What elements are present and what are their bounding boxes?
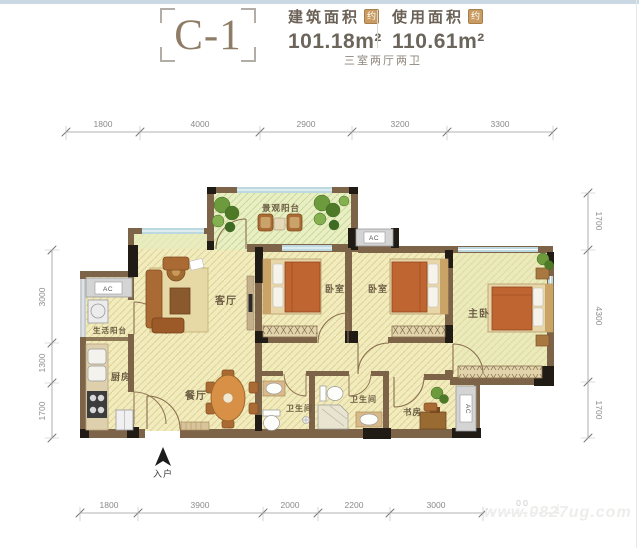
- dim-value: 4300: [594, 307, 604, 326]
- dim-value: 1700: [594, 212, 604, 231]
- living-window-tint: [134, 234, 212, 249]
- ac-text: AC: [464, 404, 471, 414]
- ac-text: AC: [103, 286, 113, 293]
- dim-value: 2200: [345, 500, 364, 510]
- room-label-bedroom2: 卧室: [368, 283, 388, 294]
- bed-bedroom1: [263, 259, 321, 314]
- dim-value: 1800: [100, 500, 119, 510]
- dim-value: 4000: [191, 119, 210, 129]
- shoe-cabinet: [181, 422, 209, 430]
- room-label-living: 客厅: [214, 294, 237, 307]
- dim-value: 2000: [281, 500, 300, 510]
- ac-unit-service: AC: [86, 278, 132, 297]
- entrance-label: 入户: [153, 468, 173, 479]
- room-label-study: 书房: [403, 407, 422, 417]
- watermark: www.0827ug.com: [484, 504, 634, 522]
- floor-plan: 1800 4000 2900 3200 3300 1800 3900 2000 …: [0, 0, 639, 548]
- dim-left: 3000 1300 1700: [37, 246, 59, 442]
- dim-value: 3300: [491, 119, 510, 129]
- sofa-set: [146, 257, 208, 333]
- ac-unit-study: AC: [456, 386, 476, 431]
- dim-value: 3000: [37, 287, 47, 306]
- ac-unit-balcony: AC: [356, 229, 393, 246]
- tv-cabinet: [247, 276, 254, 330]
- bed-bedroom2: [390, 259, 448, 314]
- dim-value: 1800: [94, 119, 113, 129]
- dim-right: 1700 4300 1700: [581, 189, 604, 442]
- room-label-bedroom1: 卧室: [325, 283, 345, 294]
- dim-value: 1300: [37, 353, 47, 372]
- washer: [88, 300, 108, 323]
- room-label-view-balcony: 景观阳台: [262, 203, 300, 213]
- room-label-dining: 餐厅: [184, 389, 207, 402]
- dim-value: 1700: [594, 401, 604, 420]
- room-label-bath2: 卫生间: [350, 394, 377, 404]
- entrance-marker: 入户: [153, 447, 173, 479]
- dim-value: 3000: [427, 500, 446, 510]
- room-label-kitchen: 厨房: [111, 371, 131, 382]
- dim-value: 1700: [37, 401, 47, 420]
- ac-text: AC: [369, 235, 379, 242]
- dim-value: 3900: [191, 500, 210, 510]
- room-label-service-balcony: 生活阳台: [93, 325, 127, 335]
- room-label-master: 主卧: [468, 307, 490, 320]
- dim-top: 1800 4000 2900 3200 3300: [62, 119, 557, 140]
- room-label-bath1: 卫生间: [286, 403, 313, 413]
- dim-value: 3200: [391, 119, 410, 129]
- dim-value: 2900: [297, 119, 316, 129]
